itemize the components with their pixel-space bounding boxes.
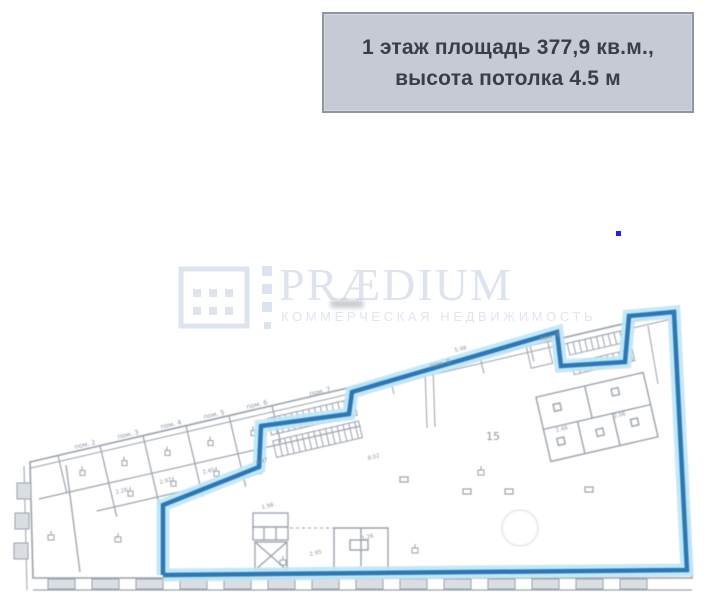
plan-label: 15 bbox=[486, 430, 500, 443]
blue-dot-artifact bbox=[616, 231, 621, 236]
page-canvas: пом. 2пом. 3пом. 4пом. 5пом. 6пом. 7пом.… bbox=[0, 0, 706, 596]
title-line2: высота потолка 4.5 м bbox=[395, 63, 621, 94]
title-box: 1 этаж площадь 377,9 кв.м., высота потол… bbox=[322, 12, 694, 113]
title-line1: 1 этаж площадь 377,9 кв.м., bbox=[362, 32, 654, 63]
